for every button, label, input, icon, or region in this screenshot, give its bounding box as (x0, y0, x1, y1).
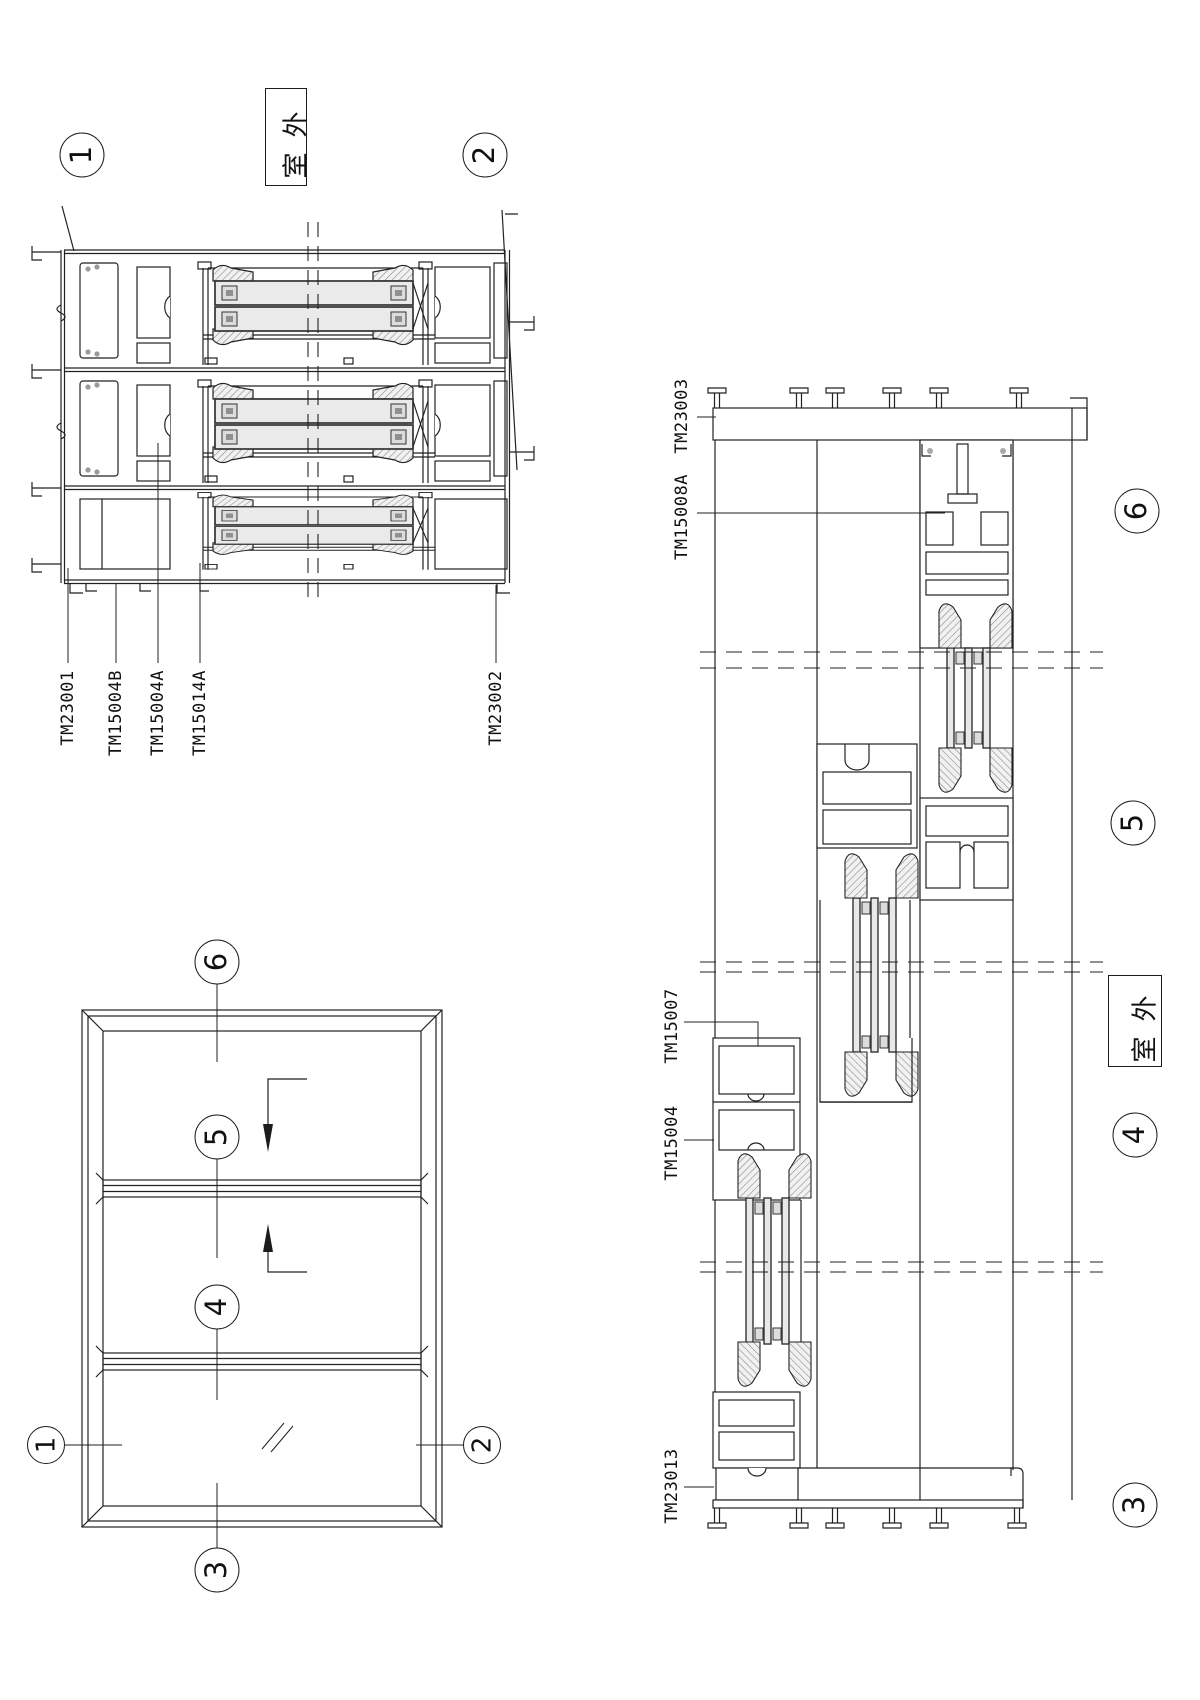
plan-callout-1-number: 1 (67, 146, 96, 164)
part-label-tm15004b: TM15004B (106, 670, 126, 756)
elev-callout-3-number: 3 (202, 1561, 231, 1579)
elevation-linework (64, 983, 464, 1549)
vsec-callout-3: 3 (1113, 1483, 1158, 1528)
plan-outdoor-label: 室外 (275, 96, 312, 178)
part-label-tm23013: TM23013 (662, 1448, 682, 1523)
part-label-tm23001: TM23001 (58, 670, 78, 745)
elev-callout-1-number: 1 (33, 1437, 59, 1454)
vsec-callout-4-number: 4 (1120, 1126, 1149, 1144)
elev-callout-6: 6 (195, 940, 240, 985)
elev-callout-2-number: 2 (469, 1437, 495, 1454)
vsec-callout-3-number: 3 (1120, 1496, 1149, 1514)
vsec-callout-6: 6 (1115, 489, 1160, 534)
elev-callout-4: 4 (195, 1285, 240, 1330)
elev-callout-1: 1 (27, 1426, 65, 1464)
vsec-callout-6-number: 6 (1122, 502, 1151, 520)
vsec-callout-5-number: 5 (1118, 814, 1147, 832)
part-label-tm15014a: TM15014A (190, 670, 210, 756)
part-label-tm15004a: TM15004A (148, 670, 168, 756)
elev-callout-2: 2 (463, 1426, 501, 1464)
plan-outdoor-label-box: 室外 (265, 88, 307, 186)
part-label-tm15008a: TM15008A (672, 474, 692, 560)
elev-callout-3: 3 (195, 1548, 240, 1593)
vsec-outdoor-label-box: 室外 (1108, 975, 1162, 1067)
vsec-callout-5: 5 (1111, 801, 1156, 846)
elev-callout-5: 5 (195, 1115, 240, 1160)
elev-callout-6-number: 6 (202, 953, 231, 971)
part-label-tm15007: TM15007 (662, 988, 682, 1063)
part-label-tm23003: TM23003 (672, 378, 692, 453)
plan-section-linework (32, 206, 534, 663)
plan-callout-2-number: 2 (470, 146, 499, 164)
vertical-section-linework (684, 388, 1103, 1528)
vsec-outdoor-label: 室外 (1124, 980, 1161, 1062)
cad-linework (0, 0, 1200, 1700)
plan-callout-1: 1 (60, 133, 105, 178)
part-label-tm15004: TM15004 (662, 1105, 682, 1180)
cad-sheet: 1 室外 2 TM23001 TM15004B TM15004A TM15014… (0, 0, 1200, 1700)
part-label-tm23002: TM23002 (486, 670, 506, 745)
plan-callout-2: 2 (463, 133, 508, 178)
elev-callout-5-number: 5 (202, 1128, 231, 1146)
elev-callout-4-number: 4 (202, 1298, 231, 1316)
vsec-callout-4: 4 (1113, 1113, 1158, 1158)
